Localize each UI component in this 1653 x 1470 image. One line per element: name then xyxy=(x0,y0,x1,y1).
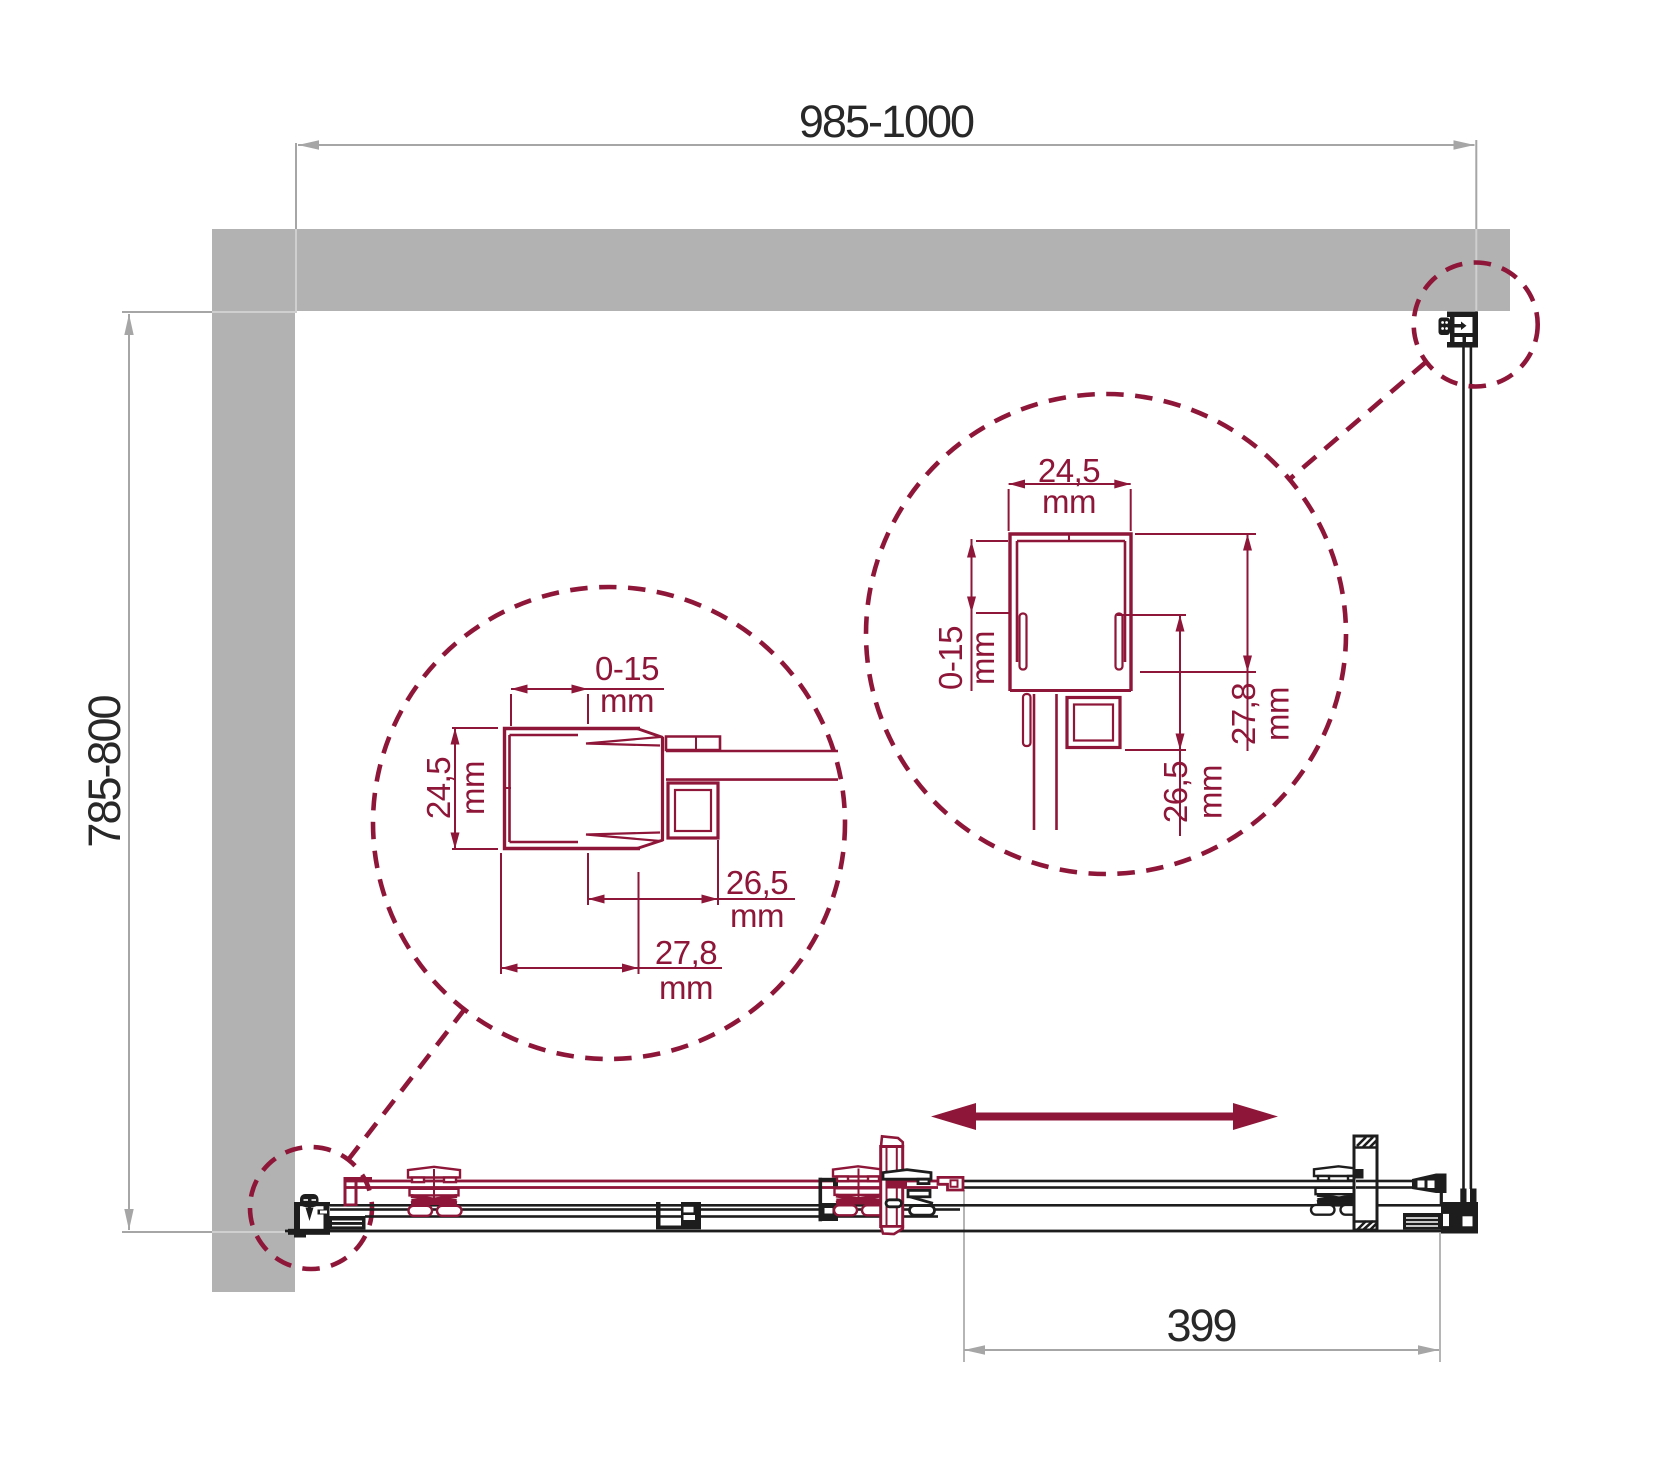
svg-text:27,8: 27,8 xyxy=(1225,683,1262,745)
svg-text:26,5: 26,5 xyxy=(726,864,788,901)
svg-text:399: 399 xyxy=(1166,1300,1235,1351)
svg-text:26,5: 26,5 xyxy=(1157,761,1194,823)
svg-text:mm: mm xyxy=(1192,765,1229,819)
svg-text:mm: mm xyxy=(454,761,491,815)
svg-text:mm: mm xyxy=(964,631,1001,685)
svg-text:785-800: 785-800 xyxy=(79,695,130,847)
svg-text:mm: mm xyxy=(600,682,654,719)
svg-text:mm: mm xyxy=(659,969,713,1006)
svg-text:mm: mm xyxy=(730,897,784,934)
svg-text:mm: mm xyxy=(1042,483,1096,520)
svg-text:27,8: 27,8 xyxy=(655,934,717,971)
svg-text:985-1000: 985-1000 xyxy=(799,96,974,147)
svg-text:mm: mm xyxy=(1259,687,1296,741)
svg-text:24,5: 24,5 xyxy=(420,757,457,819)
